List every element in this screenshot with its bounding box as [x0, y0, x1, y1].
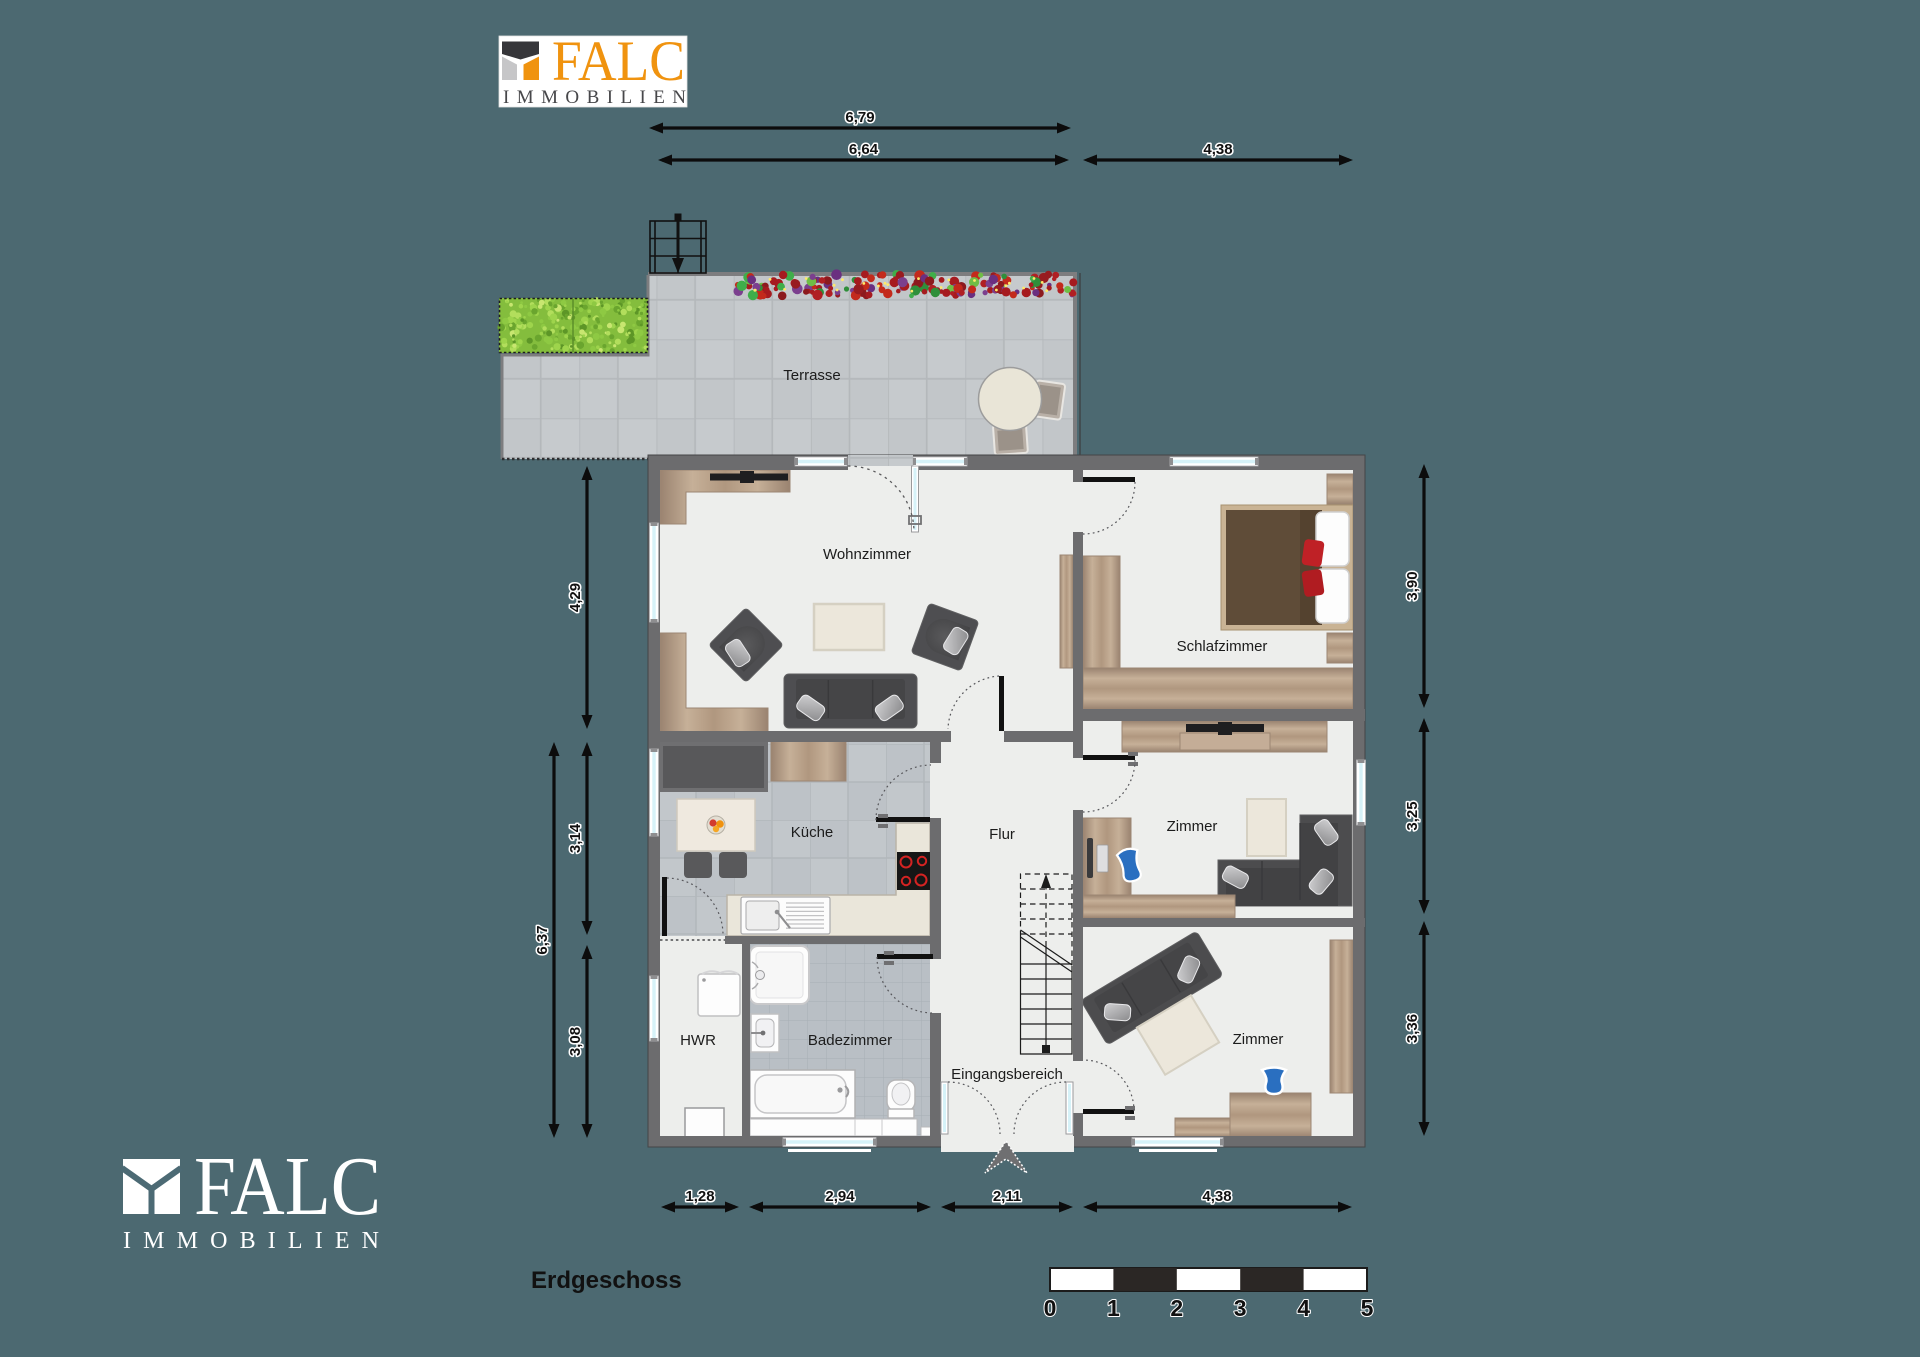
svg-text:3: 3 [1234, 1295, 1247, 1321]
svg-text:Eingangsbereich: Eingangsbereich [951, 1066, 1063, 1083]
svg-text:2,11: 2,11 [993, 1188, 1021, 1205]
svg-text:3,08: 3,08 [567, 1027, 584, 1056]
svg-text:Zimmer: Zimmer [1233, 1031, 1284, 1048]
svg-text:3,14: 3,14 [567, 823, 584, 853]
svg-text:1: 1 [1107, 1295, 1120, 1321]
svg-text:6,79: 6,79 [845, 109, 874, 126]
svg-text:5: 5 [1361, 1295, 1374, 1321]
svg-text:Wohnzimmer: Wohnzimmer [823, 546, 911, 563]
svg-text:4: 4 [1297, 1295, 1310, 1321]
svg-text:Küche: Küche [791, 824, 834, 841]
svg-text:2: 2 [1170, 1295, 1183, 1321]
svg-text:6,37: 6,37 [534, 925, 551, 954]
svg-text:Erdgeschoss: Erdgeschoss [531, 1267, 682, 1294]
svg-text:Schlafzimmer: Schlafzimmer [1177, 638, 1268, 655]
svg-text:4,29: 4,29 [567, 583, 584, 612]
svg-text:Zimmer: Zimmer [1167, 818, 1218, 835]
svg-text:3,36: 3,36 [1404, 1014, 1421, 1043]
svg-text:Flur: Flur [989, 826, 1015, 843]
svg-text:Terrasse: Terrasse [783, 367, 841, 384]
svg-text:IMMOBILIEN: IMMOBILIEN [503, 87, 686, 108]
svg-text:4,38: 4,38 [1203, 141, 1232, 158]
svg-text:IMMOBILIEN: IMMOBILIEN [123, 1228, 379, 1254]
svg-text:FALC: FALC [194, 1140, 381, 1233]
svg-text:4,38: 4,38 [1202, 1188, 1231, 1205]
svg-text:3,90: 3,90 [1404, 571, 1421, 600]
svg-text:2,94: 2,94 [825, 1188, 855, 1205]
svg-text:1,28: 1,28 [685, 1188, 714, 1205]
svg-text:HWR: HWR [680, 1032, 716, 1049]
svg-text:6,64: 6,64 [849, 141, 879, 158]
svg-text:3,25: 3,25 [1404, 801, 1421, 830]
svg-text:FALC: FALC [552, 30, 685, 93]
svg-text:Badezimmer: Badezimmer [808, 1032, 892, 1049]
svg-text:0: 0 [1044, 1295, 1057, 1321]
